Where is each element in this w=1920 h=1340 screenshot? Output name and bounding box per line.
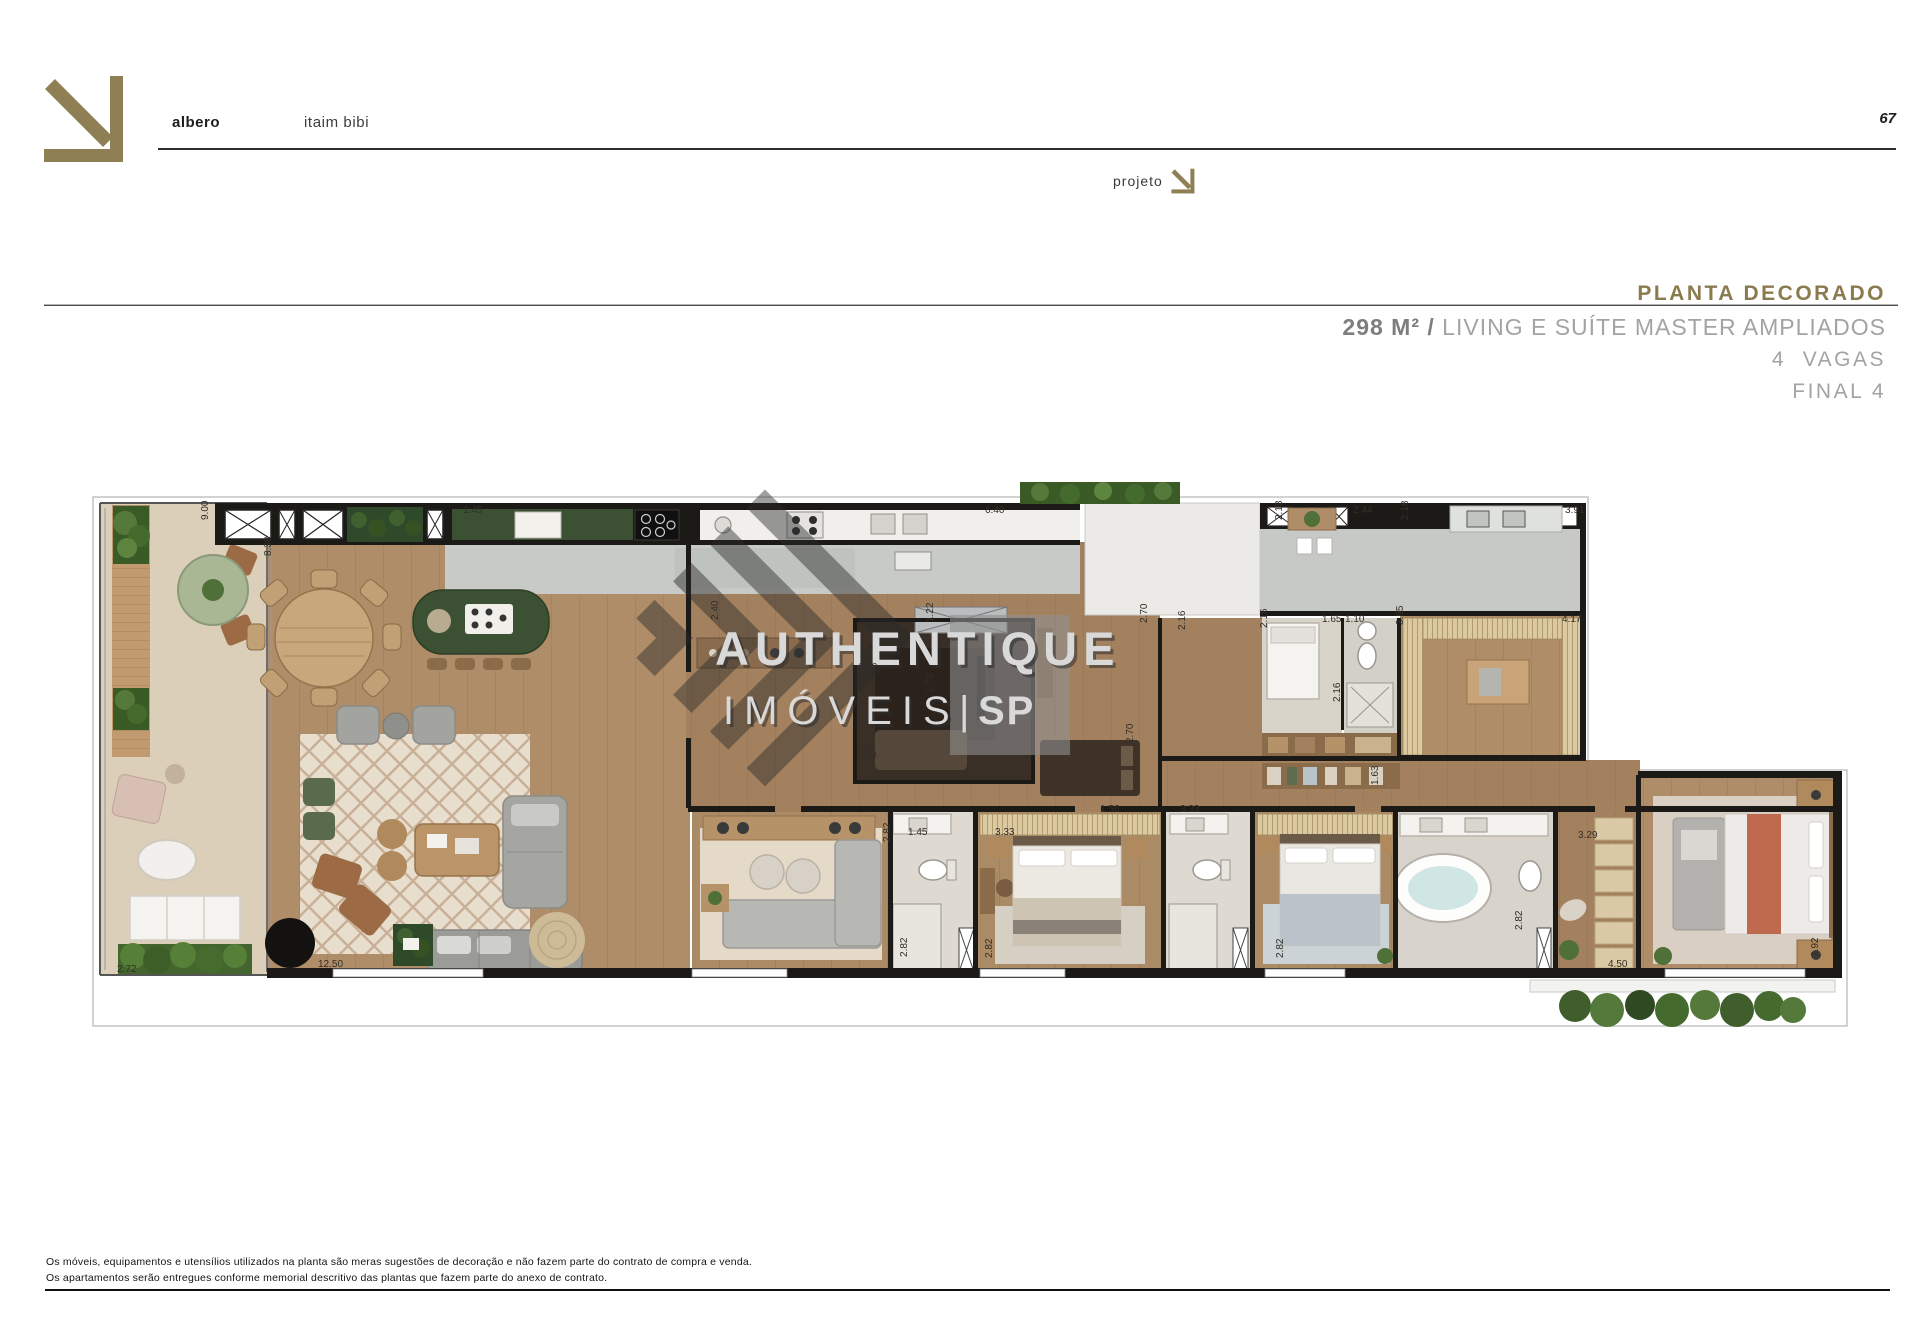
terrace-planter-top [113, 506, 150, 564]
bed-2 [1013, 836, 1121, 946]
dimension-label: 1.45 [908, 827, 928, 838]
projeto-arrow-icon [1170, 167, 1197, 194]
terrace-planter-mid [113, 688, 149, 730]
dimension-label: 2.82 [1275, 938, 1286, 958]
watermark-divider: | [959, 689, 979, 733]
bottom-rule [45, 1289, 1890, 1291]
dimension-label: 1.10 [1345, 614, 1365, 625]
dimension-label: 2.70 [1125, 723, 1136, 743]
dimension-label: 3.33 [1180, 804, 1200, 815]
bed-3 [1280, 834, 1380, 946]
dimension-label: 2.18 [1274, 500, 1285, 520]
dimension-label: 2.82 [984, 938, 995, 958]
watermark-line1: AUTHENTIQUE [715, 622, 1120, 675]
dimension-label: 1.45 [463, 505, 483, 516]
area-value: 298 M² [1342, 314, 1420, 340]
terrace-hedge [118, 942, 252, 974]
brochure-page: albero itaim bibi 67 projeto PLANTA DECO… [0, 0, 1920, 1340]
dimension-label: 1.90 [857, 750, 877, 761]
master-planter [1530, 980, 1835, 1027]
watermark-suffix: SP [978, 689, 1035, 733]
parking-spots: 4 VAGAS [1772, 348, 1886, 372]
chaise-sofa [503, 796, 567, 908]
dimension-label: 2.82 [1514, 910, 1525, 930]
master-bathroom [1395, 808, 1553, 974]
terrace [100, 503, 267, 975]
dimension-label: 3.95 [1395, 605, 1406, 625]
dimension-label: 2.40 [710, 600, 721, 620]
dimension-label: 2.92 [1810, 937, 1821, 957]
dimension-label: 3.29 [1578, 830, 1598, 841]
apartment-specs: 298 M² / LIVING E SUÍTE MASTER AMPLIADOS [1342, 314, 1886, 341]
terrace-bench [130, 896, 240, 940]
unit-final: FINAL 4 [1792, 380, 1886, 404]
service-area [1260, 503, 1582, 615]
dimension-label: 2.82 [882, 822, 893, 842]
title-underline [44, 304, 1898, 306]
dimension-label: 2.16 [1259, 608, 1270, 628]
disclaimer: Os móveis, equipamentos e utensílios uti… [46, 1254, 752, 1286]
dimension-label: 9.00 [200, 500, 211, 520]
dimension-label: 8.38 [263, 536, 274, 556]
top-planter [1020, 482, 1180, 504]
albero-logo-arrow-icon [40, 70, 132, 164]
coffee-table [415, 824, 499, 876]
walk-in-closet [1400, 615, 1585, 758]
cooktop-1 [635, 510, 679, 540]
dimension-label: 3.33 [995, 827, 1015, 838]
watermark-line2: IMÓVEIS [723, 688, 960, 733]
plan-description: LIVING E SUÍTE MASTER AMPLIADOS [1442, 314, 1886, 340]
area-separator: / [1420, 314, 1442, 340]
dimension-label: 1.65 [1322, 614, 1342, 625]
dimension-label: 2.16 [1177, 610, 1188, 630]
master-bed [1673, 810, 1838, 938]
dimension-label: 6.40 [985, 505, 1005, 516]
floor-plan: AUTHENTIQUE AUTHENTIQUE IMÓVEIS IMÓVEIS … [75, 478, 1865, 1048]
dimension-label: 2.18 [1400, 500, 1411, 520]
disclaimer-line2: Os apartamentos serão entregues conforme… [46, 1270, 752, 1286]
dimension-label: 2.16 [1332, 682, 1343, 702]
dimension-label: 4.17 [1562, 614, 1582, 625]
dimension-label: 1.63 [1370, 765, 1381, 785]
service-balcony [1085, 503, 1260, 615]
dimension-label: 1.73 [925, 673, 936, 693]
bathroom-2 [1165, 812, 1252, 972]
black-round-table [265, 918, 315, 968]
dimension-label: 2.82 [899, 937, 910, 957]
disclaimer-line1: Os móveis, equipamentos e utensílios uti… [46, 1254, 752, 1270]
den [692, 812, 888, 972]
header-rule [158, 148, 1896, 150]
organic-coffee-table [138, 840, 196, 880]
dimension-label: 3.91 [1565, 505, 1585, 516]
page-number: 67 [1879, 110, 1896, 127]
vertical-garden [347, 507, 423, 542]
dimension-label: 1.22 [925, 602, 936, 622]
dimension-label: 2.70 [1139, 603, 1150, 623]
dimension-label: 4.50 [1608, 959, 1628, 970]
dimension-label: 1.90 [858, 662, 878, 673]
brand-name: albero [172, 114, 220, 131]
kitchen [215, 482, 1180, 545]
maid-bathroom [1344, 618, 1397, 733]
page-title: PLANTA DECORADO [1637, 282, 1886, 306]
dimension-label: 2.72 [117, 964, 137, 975]
dimension-label: 12.50 [318, 959, 343, 970]
dimension-label: 1.56 [1100, 804, 1120, 815]
location-label: itaim bibi [304, 114, 369, 131]
plant-box [393, 924, 433, 966]
dimension-label: 2.44 [1353, 505, 1373, 516]
projeto-caption: projeto [1113, 167, 1197, 194]
projeto-label: projeto [1113, 173, 1163, 189]
